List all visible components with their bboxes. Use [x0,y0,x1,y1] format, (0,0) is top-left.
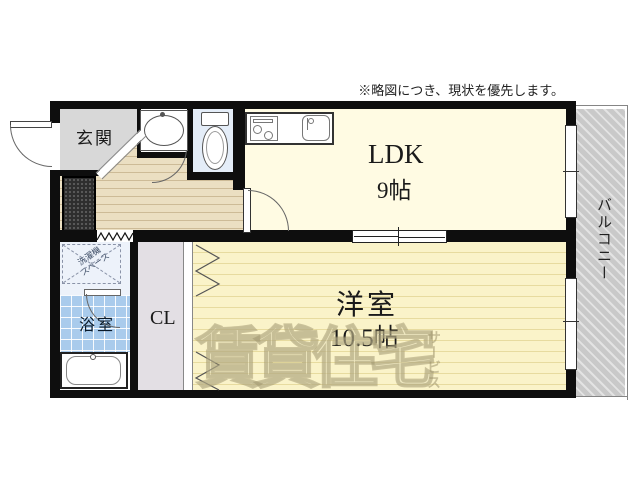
wall-bath-cl [130,242,138,390]
sliding-door-rail-right [399,237,445,238]
shoe-cabinet [62,176,96,236]
watermark-sub: サービス [424,330,444,390]
ldk-window-tick [563,171,579,172]
wall-mid-seg1 [50,230,97,242]
toilet-seat [206,131,224,164]
kitchen-faucet-icon [308,118,314,124]
wall-right-seg3 [566,370,576,398]
ldk-size: 9帖 [377,171,412,205]
bathroom-label: 浴室 [79,311,115,335]
kitchen-faucet-stem [307,118,308,130]
wall-top [50,101,576,109]
stove-grill [253,119,273,123]
western-room-label: 洋室 [336,283,398,323]
floorplan: ※略図につき、現状を優先します。 バルコニー [0,0,640,480]
bathtub-inner [66,356,121,385]
stove-burner-1 [253,125,262,134]
closet-door-track [183,242,193,390]
bathtub-drain-icon [90,354,96,360]
watermark-main: 賃貸住宅 [196,322,428,394]
wall-left-lower [50,170,60,398]
genkan-label: 玄関 [76,124,114,149]
washbasin-bowl [144,115,184,146]
balcony-outline-right [627,105,628,400]
western-balcony-window [565,278,577,370]
balcony-outline-top [575,105,628,106]
closet-label: CL [150,307,176,330]
disclaimer-note: ※略図につき、現状を優先します。 [358,80,564,99]
sliding-door-rail-left [354,236,398,237]
balcony-outline-bottom [575,396,628,397]
wall-right-seg1 [566,101,576,125]
western-window-tick [563,321,579,322]
wall-left-upper [50,101,60,123]
balcony-label: バルコニー [593,197,614,282]
washbasin-faucet-icon [160,112,165,117]
wall-mid-seg3 [447,230,566,242]
toilet-tank [201,112,229,126]
sliding-door-divider [398,227,399,246]
wall-toilet-bottom [187,172,245,180]
ldk-label: LDK [368,139,424,170]
entrance-door-arc [10,125,52,167]
wall-genkan-bottom [58,170,100,176]
wall-right-seg2 [566,218,576,278]
stove-burner-2 [264,131,273,140]
